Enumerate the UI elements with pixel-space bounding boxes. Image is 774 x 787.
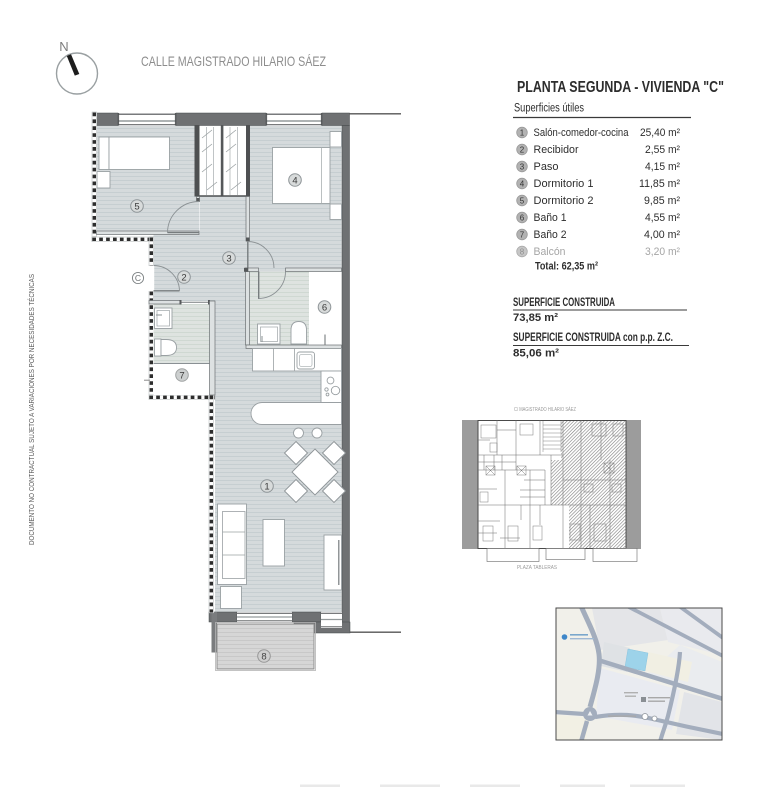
svg-text:5: 5 [520, 197, 525, 206]
svg-text:Salón-comedor-cocina: Salón-comedor-cocina [534, 127, 630, 139]
svg-text:Dormitorio 2: Dormitorio 2 [534, 195, 594, 207]
svg-text:2: 2 [181, 273, 186, 284]
svg-text:PLANTA SEGUNDA - VIVIENDA "C": PLANTA SEGUNDA - VIVIENDA "C" [517, 79, 724, 96]
svg-text:Baño 1: Baño 1 [534, 212, 567, 224]
svg-text:25,40 m²: 25,40 m² [640, 127, 680, 139]
svg-text:Baño 2: Baño 2 [534, 229, 567, 241]
svg-text:Balcón: Balcón [534, 246, 566, 258]
svg-text:1: 1 [264, 482, 269, 493]
svg-text:9,85 m²: 9,85 m² [644, 195, 680, 207]
svg-text:3: 3 [226, 254, 231, 265]
svg-text:Superficies útiles: Superficies útiles [514, 103, 584, 115]
svg-text:1: 1 [520, 129, 525, 138]
svg-text:SUPERFICIE CONSTRUIDA: SUPERFICIE CONSTRUIDA [513, 297, 615, 309]
svg-text:3,20 m²: 3,20 m² [645, 246, 680, 258]
svg-text:4: 4 [292, 176, 297, 187]
svg-text:C: C [135, 273, 141, 283]
svg-text:N: N [59, 39, 68, 54]
svg-text:8: 8 [520, 248, 525, 257]
svg-text:8: 8 [261, 652, 266, 663]
svg-text:PLAZA TABLERAS: PLAZA TABLERAS [517, 565, 558, 571]
svg-text:Recibidor: Recibidor [534, 144, 579, 156]
svg-text:7: 7 [520, 231, 525, 240]
svg-text:4,15 m²: 4,15 m² [645, 161, 680, 173]
svg-text:4,55 m²: 4,55 m² [645, 212, 680, 224]
svg-text:C/ MAGISTRADO HILARIO SÁEZ: C/ MAGISTRADO HILARIO SÁEZ [514, 406, 576, 413]
svg-text:CALLE MAGISTRADO HILARIO SÁEZ: CALLE MAGISTRADO HILARIO SÁEZ [141, 53, 326, 69]
svg-text:DOCUMENTO NO CONTRACTUAL SUJET: DOCUMENTO NO CONTRACTUAL SUJETO A VARIAC… [27, 274, 36, 545]
svg-text:11,85 m²: 11,85 m² [639, 178, 680, 190]
svg-text:SUPERFICIE CONSTRUIDA con p.p.: SUPERFICIE CONSTRUIDA con p.p. Z.C. [513, 332, 673, 344]
svg-text:Total: 62,35 m²: Total: 62,35 m² [535, 261, 598, 273]
svg-text:4: 4 [520, 180, 525, 189]
svg-text:Dormitorio 1: Dormitorio 1 [534, 178, 594, 190]
svg-text:Paso: Paso [534, 161, 559, 173]
svg-text:73,85 m²: 73,85 m² [513, 312, 558, 324]
svg-text:6: 6 [322, 303, 327, 314]
svg-text:2,55 m²: 2,55 m² [645, 144, 680, 156]
svg-text:85,06 m²: 85,06 m² [513, 348, 559, 360]
svg-text:7: 7 [179, 371, 184, 382]
svg-text:3: 3 [520, 163, 525, 172]
svg-text:6: 6 [520, 214, 525, 223]
svg-text:2: 2 [520, 146, 525, 155]
svg-text:4,00 m²: 4,00 m² [644, 229, 680, 241]
svg-text:5: 5 [134, 202, 139, 213]
